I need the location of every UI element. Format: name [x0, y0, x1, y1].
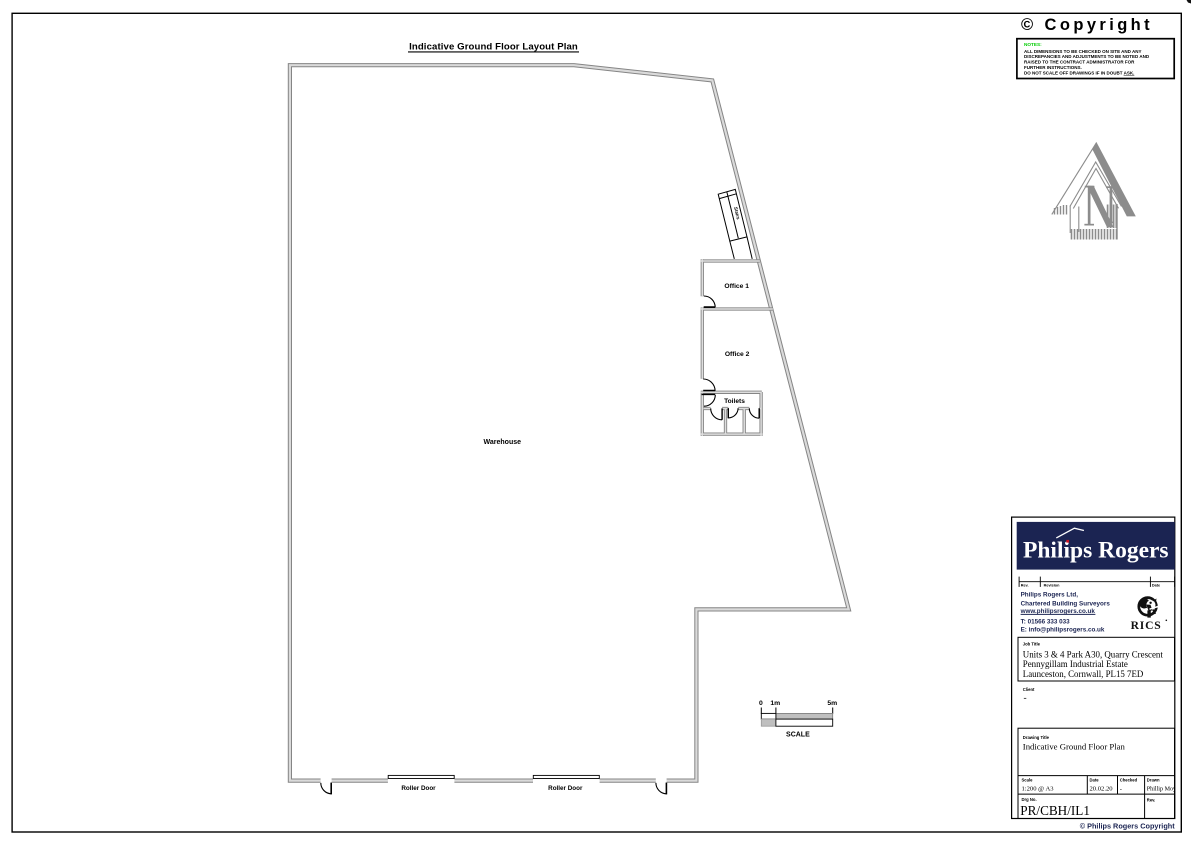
svg-text:© Philips Rogers Copyright: © Philips Rogers Copyright: [1080, 822, 1176, 831]
svg-text:RICS: RICS: [1131, 619, 1162, 632]
svg-text:Units 3 & 4 Park A30, Quarry C: Units 3 & 4 Park A30, Quarry Crescent: [1023, 649, 1164, 659]
svg-text:Checked: Checked: [1120, 778, 1138, 783]
svg-text:T: 01566 333 033: T: 01566 333 033: [1021, 618, 1071, 625]
svg-text:PR/CBH/IL1: PR/CBH/IL1: [1020, 803, 1090, 818]
svg-text:Rev.: Rev.: [1147, 798, 1156, 803]
svg-text:1m: 1m: [770, 700, 780, 707]
svg-text:ALL DIMENSIONS TO BE CHECKED O: ALL DIMENSIONS TO BE CHECKED ON SITE AND…: [1024, 49, 1142, 54]
svg-text:Philips Rogers: Philips Rogers: [1023, 537, 1169, 563]
svg-text:0: 0: [759, 700, 763, 707]
svg-text:Client: Client: [1023, 687, 1035, 692]
svg-text:Indicative Ground Floor Layout: Indicative Ground Floor Layout Plan: [409, 42, 578, 53]
svg-text:Philips Rogers Ltd,: Philips Rogers Ltd,: [1021, 592, 1079, 599]
svg-text:Chartered Building Surveyors: Chartered Building Surveyors: [1021, 601, 1111, 608]
svg-text:Drg No.: Drg No.: [1022, 797, 1037, 802]
svg-text:5m: 5m: [827, 700, 837, 707]
svg-text:FURTHER INSTRUCTIONS.: FURTHER INSTRUCTIONS.: [1024, 65, 1082, 70]
svg-text:Drawn: Drawn: [1147, 778, 1160, 783]
svg-text:Launceston, Cornwall, PL15 7ED: Launceston, Cornwall, PL15 7ED: [1023, 669, 1144, 679]
svg-text:SCALE: SCALE: [786, 732, 810, 739]
svg-text:Toilets: Toilets: [724, 398, 745, 405]
svg-text:DO NOT SCALE OFF DRAWINGS IF I: DO NOT SCALE OFF DRAWINGS IF IN DOUBT AS…: [1024, 70, 1134, 75]
svg-text:Pennygillam Industrial Estate: Pennygillam Industrial Estate: [1023, 659, 1128, 669]
svg-text:DISCREPANCIES AND ADJUSTMENTS: DISCREPANCIES AND ADJUSTMENTS TO BE NOTE…: [1024, 54, 1150, 59]
svg-text:www.philipsrogers.co.uk: www.philipsrogers.co.uk: [1020, 608, 1096, 615]
svg-text:Roller Door: Roller Door: [401, 785, 436, 792]
svg-text:RAISED TO THE CONTRACT ADMINIS: RAISED TO THE CONTRACT ADMINISTRATOR FOR: [1024, 60, 1135, 65]
svg-text:Office 1: Office 1: [724, 283, 749, 290]
svg-text:Phillip Moy: Phillip Moy: [1147, 787, 1177, 793]
svg-text:Indicative Ground Floor Plan: Indicative Ground Floor Plan: [1023, 741, 1126, 751]
svg-text:Date: Date: [1090, 778, 1100, 783]
svg-text:Drawing Title: Drawing Title: [1023, 735, 1050, 740]
svg-text:Rev.: Rev.: [1021, 583, 1029, 587]
svg-text:Scale: Scale: [1022, 778, 1034, 783]
svg-text:Warehouse: Warehouse: [484, 439, 522, 446]
svg-text:Date: Date: [1152, 583, 1160, 587]
svg-text:Office 2: Office 2: [725, 351, 750, 358]
svg-text:20.02.20: 20.02.20: [1090, 786, 1114, 793]
svg-text:Job Title: Job Title: [1023, 642, 1041, 647]
svg-text:Roller Door: Roller Door: [548, 785, 583, 792]
svg-text:-: -: [1024, 693, 1027, 703]
svg-text:-: -: [1120, 786, 1122, 793]
svg-text:1:200 @ A3: 1:200 @ A3: [1022, 786, 1055, 793]
svg-text:NOTES:: NOTES:: [1024, 42, 1042, 47]
svg-text:E: info@philipsrogers.co.uk: E: info@philipsrogers.co.uk: [1021, 627, 1105, 634]
svg-text:© Copyright: © Copyright: [1021, 16, 1153, 34]
svg-text:Revision: Revision: [1044, 583, 1061, 587]
